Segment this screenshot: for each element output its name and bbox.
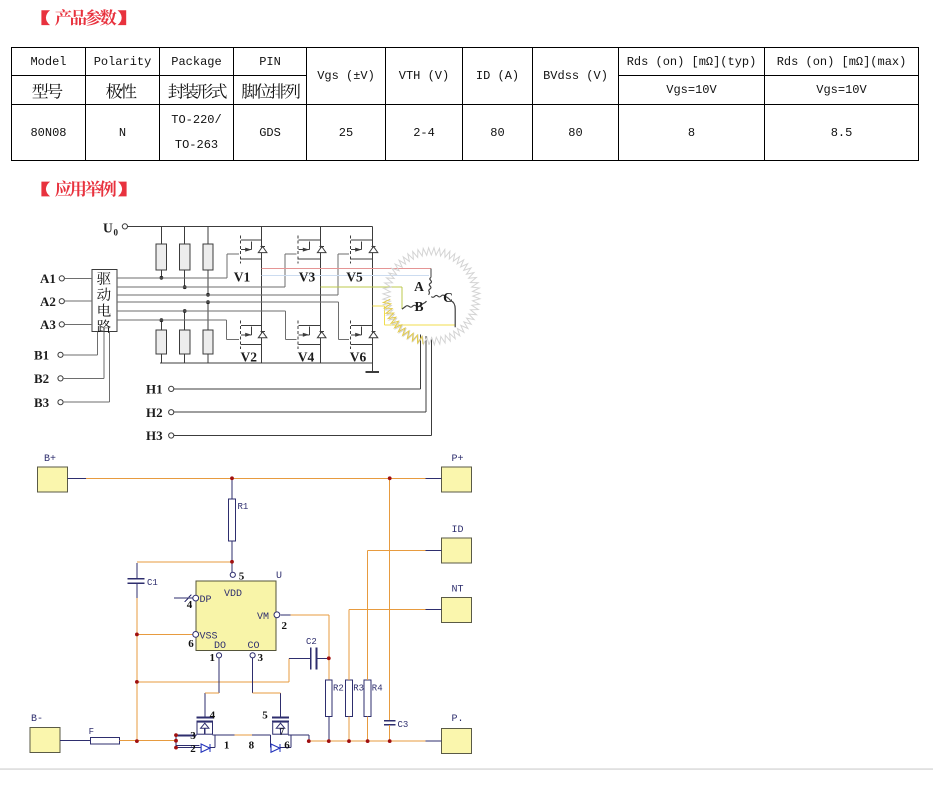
svg-text:V4: V4 [298,349,315,364]
svg-text:V6: V6 [350,349,367,364]
svg-text:B: B [414,299,423,314]
svg-text:B+: B+ [44,454,56,465]
svg-text:VDD: VDD [224,589,242,600]
svg-text:ID: ID [452,525,464,536]
svg-text:P.: P. [452,714,464,725]
svg-text:B2: B2 [34,371,49,386]
svg-text:R4: R4 [372,684,383,694]
svg-text:3: 3 [258,652,264,664]
svg-text:R1: R1 [238,502,249,512]
svg-text:DP: DP [200,595,212,606]
svg-text:C1: C1 [147,578,158,588]
svg-text:5: 5 [262,709,268,721]
svg-text:B1: B1 [34,348,49,363]
svg-text:4: 4 [210,709,216,721]
svg-text:3: 3 [190,730,196,742]
svg-text:B-: B- [31,714,43,725]
svg-text:CO: CO [248,641,260,652]
svg-text:H3: H3 [146,428,163,443]
svg-text:A2: A2 [40,294,56,309]
svg-text:H1: H1 [146,382,163,397]
svg-text:7: 7 [279,727,284,738]
svg-text:V3: V3 [299,270,316,285]
svg-text:F: F [89,727,94,737]
svg-text:0: 0 [114,228,119,238]
svg-text:2: 2 [282,620,288,632]
svg-text:U: U [276,571,282,582]
svg-text:VM: VM [257,612,269,623]
svg-text:V2: V2 [241,349,258,364]
svg-text:6: 6 [188,638,194,650]
svg-text:U: U [103,221,113,236]
svg-text:DO: DO [214,641,226,652]
svg-text:1: 1 [224,740,230,752]
svg-text:8: 8 [249,740,255,752]
svg-text:A: A [414,279,424,294]
svg-text:C: C [443,290,453,305]
svg-text:A1: A1 [40,271,56,286]
svg-text:H2: H2 [146,405,163,420]
svg-text:C2: C2 [306,637,317,647]
svg-text:V1: V1 [234,270,251,285]
svg-text:2: 2 [190,743,196,755]
svg-text:4: 4 [187,599,193,611]
svg-text:R3: R3 [353,684,364,694]
svg-text:P+: P+ [452,454,464,465]
svg-text:A3: A3 [40,317,56,332]
svg-text:NT: NT [452,585,464,596]
svg-text:R2: R2 [333,684,344,694]
svg-text:1: 1 [210,652,216,664]
svg-text:B3: B3 [34,395,50,410]
svg-text:6: 6 [284,740,290,752]
svg-text:C3: C3 [398,720,409,730]
svg-text:V5: V5 [346,270,363,285]
